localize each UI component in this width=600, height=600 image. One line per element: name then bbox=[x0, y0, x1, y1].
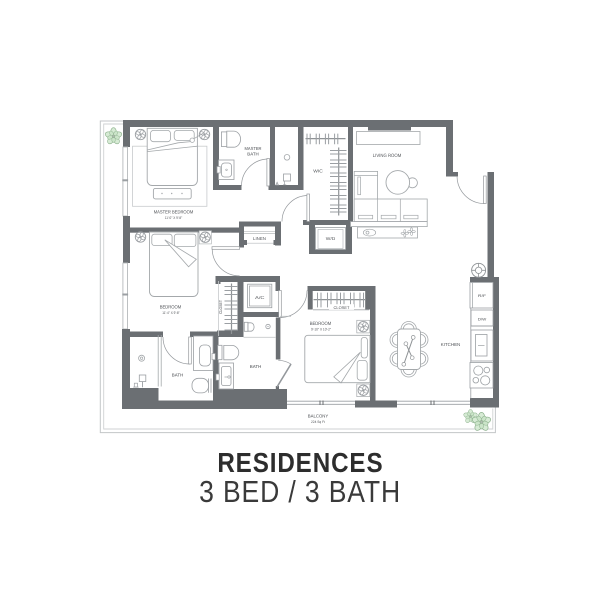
svg-text:BATH: BATH bbox=[250, 364, 262, 369]
svg-text:MASTER: MASTER bbox=[245, 146, 262, 151]
svg-text:MASTER BEDROOM: MASTER BEDROOM bbox=[154, 209, 194, 215]
svg-text:BEDROOM: BEDROOM bbox=[310, 321, 332, 327]
svg-text:BATH: BATH bbox=[172, 372, 184, 377]
svg-text:KITCHEN: KITCHEN bbox=[441, 342, 461, 347]
svg-text:9'-10" X 10'-2": 9'-10" X 10'-2" bbox=[311, 328, 332, 332]
svg-text:11'-4" X 9'-8": 11'-4" X 9'-8" bbox=[162, 311, 180, 315]
svg-text:LINEN: LINEN bbox=[253, 236, 266, 241]
svg-text:CLOSET: CLOSET bbox=[218, 300, 223, 314]
svg-text:D/W: D/W bbox=[478, 317, 487, 321]
svg-text:11'-0" X 9'-8": 11'-0" X 9'-8" bbox=[165, 216, 183, 220]
svg-text:LIVING ROOM: LIVING ROOM bbox=[373, 153, 402, 159]
svg-text:BEDROOM: BEDROOM bbox=[160, 304, 182, 310]
svg-text:224 Sq Ft: 224 Sq Ft bbox=[311, 420, 325, 424]
svg-text:W/D: W/D bbox=[326, 236, 336, 241]
svg-text:R/F: R/F bbox=[478, 294, 487, 298]
svg-text:A/C: A/C bbox=[255, 295, 265, 300]
svg-text:WIC: WIC bbox=[313, 169, 323, 174]
svg-text:BATH: BATH bbox=[247, 152, 259, 157]
svg-text:CLOSET: CLOSET bbox=[334, 305, 351, 310]
svg-text:BALCONY: BALCONY bbox=[308, 413, 329, 418]
